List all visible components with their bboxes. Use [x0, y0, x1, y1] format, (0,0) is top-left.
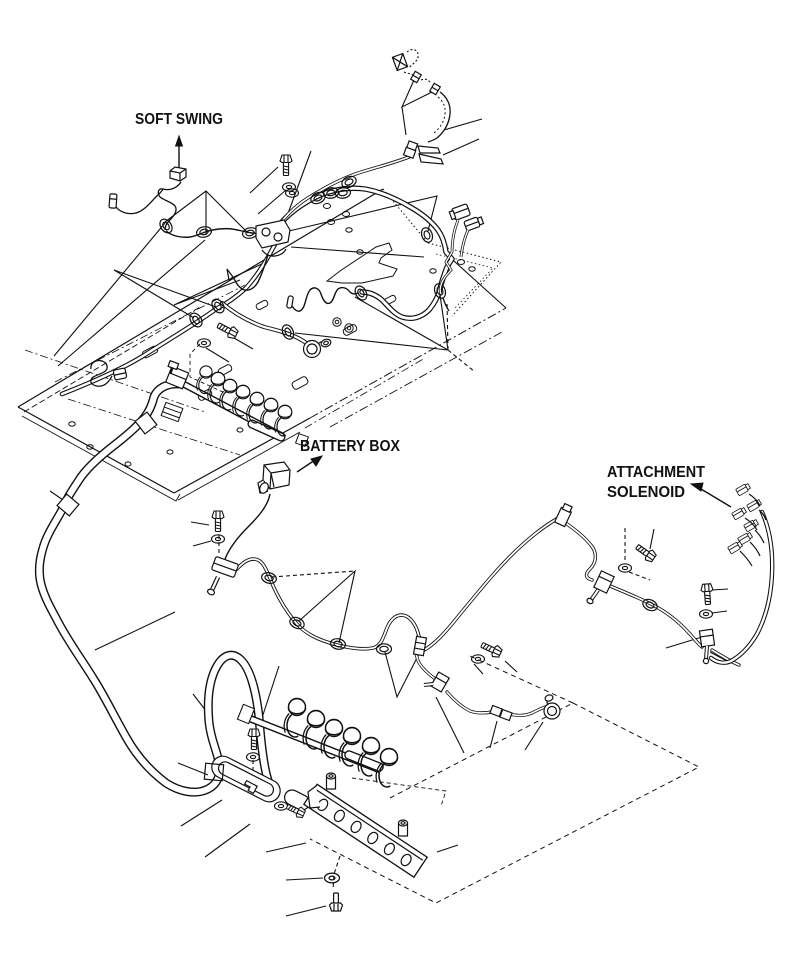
svg-text:BATTERY BOX: BATTERY BOX [300, 438, 401, 455]
svg-text:ATTACHMENT: ATTACHMENT [607, 464, 705, 481]
svg-text:SOLENOID: SOLENOID [607, 484, 685, 501]
svg-text:SOFT SWING: SOFT SWING [135, 111, 223, 128]
